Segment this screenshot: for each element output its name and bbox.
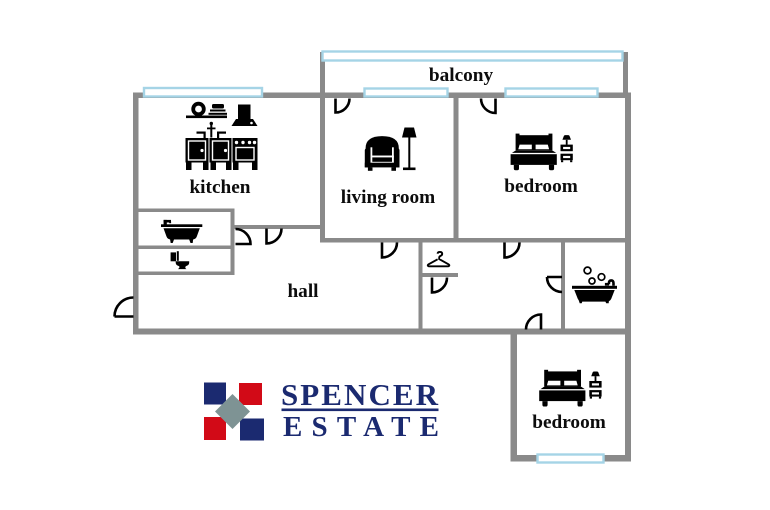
svg-text:hall: hall	[287, 281, 319, 302]
svg-text:ESTATE: ESTATE	[283, 411, 445, 443]
svg-text:SPENCER: SPENCER	[281, 377, 440, 412]
svg-text:kitchen: kitchen	[189, 177, 250, 198]
svg-text:bedroom: bedroom	[532, 412, 606, 433]
svg-text:bedroom: bedroom	[504, 176, 578, 197]
svg-text:balcony: balcony	[429, 65, 494, 86]
svg-text:living room: living room	[341, 187, 435, 208]
